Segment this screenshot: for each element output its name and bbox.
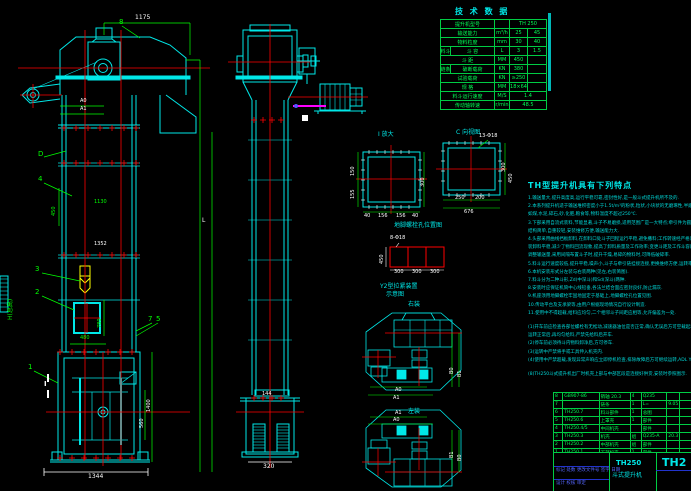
- bom-cell: [666, 409, 679, 416]
- tech-row: 规 格MM18×64: [441, 82, 546, 91]
- dim-676: 676: [464, 210, 474, 215]
- title-block-line: [656, 470, 691, 471]
- bom-cell: [666, 441, 679, 448]
- tech-label: 斗 距: [441, 56, 494, 64]
- arrangement-top-label: 右装: [408, 302, 420, 308]
- tech-value: [527, 65, 546, 73]
- title-block-line: [554, 466, 609, 467]
- bom-cell: 料斗部件: [599, 409, 630, 416]
- dim-320: 320: [263, 464, 274, 470]
- dim-A1: A1: [80, 107, 87, 112]
- bom-cell: 3: [554, 433, 562, 440]
- anchor-bolt-layout: [390, 247, 444, 267]
- anchor-caption: 地脚螺栓孔位置图: [394, 223, 442, 229]
- tech-value: [527, 56, 546, 64]
- arr-bot-B0: B0: [458, 454, 463, 461]
- bom-cell: 6: [554, 409, 562, 416]
- bom-cell: [679, 441, 691, 448]
- tech-row: 输送能力m³/h2545: [441, 28, 546, 37]
- tech-label: 传动轴转速: [441, 101, 494, 109]
- detail-caption-C: C 向视图: [456, 130, 480, 136]
- note-line: 装卸料平稳,减少了物料回流现象,提高了卸料质量及工作效率;变更斗距及工作斗容即可…: [528, 244, 691, 252]
- note-line: 7.料斗分为二种斗形,Zd(中深斗)和Sd(深斗)两种.: [528, 277, 691, 285]
- arr-top-B0: B0: [450, 367, 455, 374]
- tech-unit: KN: [494, 74, 509, 82]
- bom-cell: GB907-86: [562, 393, 598, 400]
- tech-row: 链条破断载荷KN380: [441, 64, 546, 73]
- bom-cell: 1: [630, 401, 641, 408]
- part-label-7: 7: [148, 316, 152, 323]
- bom-cell: [679, 425, 691, 432]
- title-block-divider: [656, 453, 657, 491]
- dim-b2: 156: [378, 214, 388, 219]
- bom-cell: TH250.7: [562, 409, 598, 416]
- dim-b3: 156: [396, 214, 406, 219]
- part-label-2: 2: [35, 289, 39, 296]
- tech-label: 试验载荷: [441, 74, 494, 82]
- notes-title: TH型提升机具有下列特点: [528, 180, 691, 191]
- tech-value: 45: [527, 29, 546, 37]
- main-dimensions: [34, 23, 212, 472]
- dim-144: 144: [262, 392, 272, 397]
- frame-mark: [548, 13, 551, 91]
- part-label-8: 8: [119, 19, 123, 26]
- dim-1175: 1175: [135, 15, 150, 21]
- tech-unit: mm: [494, 38, 509, 46]
- tech-row: 提升机型号TH 250: [441, 20, 546, 28]
- dim-200: 200: [475, 196, 485, 201]
- tech-unit: [494, 20, 509, 28]
- flange-right-dims: [443, 140, 505, 208]
- tech-value: 48.5: [509, 101, 546, 109]
- bom-row: 4TH250.4/5中间机壳部件: [554, 424, 691, 432]
- bom-cell: [679, 417, 691, 424]
- bom-cell: TH250.3: [562, 433, 598, 440]
- detail-caption-I: I 放大: [378, 132, 394, 138]
- product-name: 斗式提升机: [612, 473, 642, 479]
- tech-unit: L: [494, 47, 509, 55]
- tech-data-table: 提升机型号TH 250输送能力m³/h2545物料粒度mm3040料斗斗 容L3…: [440, 19, 547, 110]
- bom-cell: 2: [554, 441, 562, 448]
- part-label-4: 4: [38, 176, 42, 183]
- note-line: 6.本机安装形式分左装与右装两种(见左,右装简图).: [528, 269, 691, 277]
- dim-1344: 1344: [88, 474, 103, 480]
- arr-top-B1: B1: [458, 370, 463, 377]
- bom-row: 6TH250.7料斗部件1总图: [554, 408, 691, 416]
- tension-line2: 示意图: [386, 292, 404, 298]
- dim-155: 155: [351, 189, 356, 199]
- note-line: 5.料斗运行速度较低,提升平稳,噪声小,斗子与牵引链挂接连接,更换维修方便,运转…: [528, 261, 691, 269]
- tech-unit: r/min: [494, 101, 509, 109]
- bom-cell: 4: [554, 425, 562, 432]
- tech-value: 450: [509, 56, 527, 64]
- title-block-row2: 设计 校核 审定: [556, 482, 586, 487]
- tech-unit: MM: [494, 56, 509, 64]
- dim-560: 560: [140, 418, 145, 428]
- bom-cell: 总图: [641, 409, 667, 416]
- arr-bot-A1: A1: [395, 411, 402, 416]
- arrangement-bottom: [366, 410, 461, 487]
- part-label-5: 5: [156, 316, 160, 323]
- bom-cell: 7: [554, 401, 562, 408]
- dim-450: 450: [52, 206, 57, 216]
- dim-b1: 40: [364, 214, 370, 219]
- bom-cell: [679, 393, 691, 400]
- bucket-hatch: [253, 427, 289, 448]
- bom-cell: [562, 401, 598, 408]
- tech-value: 1.5: [527, 47, 546, 55]
- tech-value: [527, 83, 546, 91]
- bom-cell: 4: [630, 393, 641, 400]
- title-block-row1: 标记 处数 更改文件号 签字 日期: [556, 469, 620, 474]
- anchor-c3: 300: [430, 270, 440, 275]
- tech-unit: KN: [494, 65, 509, 73]
- bom-cell: Q235-A: [641, 433, 667, 440]
- dim-450-right: 450: [509, 173, 514, 183]
- holes-13: 13-Φ18: [479, 134, 497, 139]
- tech-row: 试验载荷KN≥250: [441, 73, 546, 82]
- note-line: 调整输送量,采用间隔布置斗子时,提升干燥,易碎的物料时,可降低破碎率.: [528, 252, 691, 260]
- tension-line1: Y2型拉紧装置: [380, 284, 417, 290]
- side-view: [236, 25, 366, 457]
- dim-480: 480: [80, 336, 90, 341]
- bom-cell: [630, 425, 641, 432]
- dim-H-total: H(总高): [8, 299, 14, 320]
- title-block: 标记 处数 更改文件号 签字 日期 设计 校核 审定 TH250 斗式提升机 T…: [553, 452, 691, 491]
- flange-right-centerlines: [436, 136, 507, 202]
- note-line: 1.输送量大,提升高度高,运行平稳可靠,密封性好,是一般斗式提升机所不及的.: [528, 195, 691, 203]
- note-line: 运转正常后,再均匀给料,严禁先给料后开车.: [528, 332, 691, 340]
- bolt-hole-marks: [361, 150, 422, 209]
- note-line: (1)开车前应检查各部位螺栓有无松动,减速器油位是否正常,确认无误后方可空载起动…: [528, 324, 691, 332]
- bom-cell: 中间机壳: [599, 425, 630, 432]
- dim-150: 150: [351, 166, 356, 176]
- bom-cell: 8: [554, 393, 562, 400]
- note-line: 10.传动平台及支承梁等,由用户根据现场情况自行设计制造.: [528, 302, 691, 310]
- dim-A0: A0: [80, 99, 87, 104]
- tech-value: ≥250: [509, 74, 527, 82]
- arr-top-A0: A0: [395, 388, 402, 393]
- shaft-end-dot: [294, 104, 298, 108]
- bom-row: 8GB907-86销轴 20.34Q235: [554, 393, 691, 400]
- main-centerlines: [18, 30, 210, 466]
- tech-label: 提升机型号: [441, 20, 494, 28]
- bom-cell: [666, 425, 679, 432]
- dim-1130: 1130: [94, 200, 107, 205]
- bom-cell: [679, 401, 691, 408]
- bom-cell: L=: [641, 401, 667, 408]
- bom-cell: 20.3: [666, 433, 679, 440]
- arr-bot-B1: B1: [450, 451, 455, 458]
- arrangement-bottom-label: 左装: [408, 409, 420, 415]
- model-number-partial: TH2: [662, 457, 686, 468]
- dim-L: L: [202, 218, 205, 224]
- note-line: 3.下部采用自流式装料,节能显著,斗子不易磨损,适用范围广是一大特点;牵引件为圆…: [528, 220, 691, 228]
- bom-cell: TH250.4/5: [562, 425, 598, 432]
- bom-cell: 部件: [641, 425, 667, 432]
- bom-row: 2TH250.2中部机壳组部件: [554, 440, 691, 448]
- bom-row: 5TH250.6上罩壳1部件: [554, 416, 691, 424]
- arrangement-top: [366, 313, 461, 390]
- tech-label: 规 格: [441, 83, 494, 91]
- tech-group: 料斗: [441, 47, 450, 55]
- note-line: 11.使用中不得超载,给料应均匀,二个相邻斗子间距应相等,允许偏差为一处.: [528, 310, 691, 318]
- tech-row: 传动轴转速r/min48.5: [441, 100, 546, 109]
- tech-label: 破断载荷: [450, 65, 494, 73]
- tech-value: 1.4: [509, 92, 546, 100]
- note-line: (8)TH250斗式提升机出厂时机壳上部与中部区段是连接好供货,安装时参照图示.: [528, 371, 691, 379]
- tech-row: 料斗运行速度M/S1.4: [441, 91, 546, 100]
- bom-cell: TH250.6: [562, 417, 598, 424]
- dim-780: 780: [98, 318, 103, 328]
- flange-detail-left: [361, 150, 422, 209]
- note-line: (2)停车前必须待斗内物料卸净后,方可停车.: [528, 340, 691, 348]
- bom-row: 7链条1L=9.05: [554, 400, 691, 408]
- part-label-1: 1: [28, 364, 32, 371]
- section-mark-I: I: [44, 381, 47, 388]
- bom-cell: 1: [630, 417, 641, 424]
- cad-drawing-sheet[interactable]: 1175 A0 A1 8 D 4 3 2 7 5 1 I H(总高) 450 1…: [0, 0, 691, 491]
- anchor-c2: 300: [412, 270, 422, 275]
- dim-b4: 40: [412, 214, 418, 219]
- tech-label: 物料粒度: [441, 38, 494, 46]
- title-block-line: [554, 479, 609, 480]
- dim-300-right: 300: [502, 162, 507, 172]
- bom-cell: TH250.2: [562, 441, 598, 448]
- tech-value: 380: [509, 65, 527, 73]
- tech-row: 斗 距MM450: [441, 55, 546, 64]
- note-line: 结构简单,自重较轻,安装维修方便,输送能力大.: [528, 228, 691, 236]
- flange-left-centerlines: [356, 145, 427, 214]
- tech-row: 物料粒度mm3040: [441, 37, 546, 46]
- bom-cell: 组: [630, 441, 641, 448]
- tech-value: 40: [527, 38, 546, 46]
- arr-top-A1: A1: [393, 396, 400, 401]
- anchor-holes: 8-Φ18: [390, 236, 405, 241]
- bom-cell: 上罩壳: [599, 417, 630, 424]
- bom-row: 3TH250.3机壳组Q235-A20.3: [554, 432, 691, 440]
- note-line: 9.机座须用地脚螺栓牢固地固定于基础上,地脚螺栓孔位置见图.: [528, 293, 691, 301]
- tech-value: 30: [509, 38, 527, 46]
- bom-cell: [666, 417, 679, 424]
- tech-value: TH 250: [509, 20, 546, 28]
- bom-cell: 5: [554, 417, 562, 424]
- dim-250: 250: [455, 196, 465, 201]
- tech-label: 输送能力: [441, 29, 494, 37]
- note-line: 2.本系列提升机适于输送堆积密度小于1.5t/m³的粉状,粒状,小块状的无磨琢性…: [528, 203, 691, 211]
- notes-lines: 1.输送量大,提升高度高,运行平稳可靠,密封性好,是一般斗式提升机所不及的.2.…: [528, 195, 691, 379]
- feature-notes: TH型提升机具有下列特点 1.输送量大,提升高度高,运行平稳可靠,密封性好,是一…: [528, 180, 691, 388]
- dim-300-left: 300: [421, 177, 426, 187]
- bom-cell: 链条: [599, 401, 630, 408]
- bom-cell: 9.05: [666, 401, 679, 408]
- arrangement-top-centerlines: [362, 333, 462, 386]
- bom-cell: 机壳: [599, 433, 630, 440]
- tech-value: [527, 74, 546, 82]
- bom-cell: 销轴 20.3: [599, 393, 630, 400]
- note-line: (4)使用中严禁超载,发现异常声响应立即停机检查,排除故障后方可继续运转,ADL…: [528, 357, 691, 365]
- tech-label: 斗 容: [450, 47, 494, 55]
- model-number: TH250: [616, 460, 641, 467]
- bom-cell: [666, 393, 679, 400]
- bom-cell: [679, 433, 691, 440]
- bom-cell: 1: [630, 409, 641, 416]
- note-line: 8.安装时应保证机筒中心线铅垂,各法兰结合面应密封良好,防止漏灰.: [528, 285, 691, 293]
- dim-1352: 1352: [94, 242, 107, 247]
- part-label-D: D: [38, 151, 43, 158]
- bom-cell: 部件: [641, 441, 667, 448]
- tech-value: 3: [509, 47, 527, 55]
- tech-unit: M/S: [494, 92, 509, 100]
- tech-unit: m³/h: [494, 29, 509, 37]
- anchor-c1: 300: [394, 270, 404, 275]
- tech-table-title: 技 术 数 据: [455, 8, 509, 16]
- note-line: 4.头部采用曲线挡板卸料,在卸料口处斗子回程运行平稳,避免撒料;工作转速经严格计…: [528, 236, 691, 244]
- arr-bot-A0: A0: [393, 418, 400, 423]
- bom-cell: 中部机壳: [599, 441, 630, 448]
- note-line: 如煤,水泥,碎石,砂,化肥,粮食等,物料温度不超过250℃.: [528, 211, 691, 219]
- tech-label: 料斗运行速度: [441, 92, 494, 100]
- dim-1400: 1400: [147, 399, 152, 412]
- tech-value: 18×64: [509, 83, 527, 91]
- bom-cell: Q235: [641, 393, 667, 400]
- bom-cell: 组: [630, 433, 641, 440]
- tech-unit: MM: [494, 83, 509, 91]
- tech-row: 料斗斗 容L31.5: [441, 46, 546, 55]
- dim-text-block: [302, 115, 308, 121]
- part-label-3: 3: [35, 266, 39, 273]
- tech-value: 25: [509, 29, 527, 37]
- bom-cell: [679, 409, 691, 416]
- tech-group: 链条: [441, 65, 450, 73]
- anchor-side: 450: [380, 254, 385, 264]
- bom-cell: 部件: [641, 417, 667, 424]
- note-line: (3)运转中严禁将手或工具伸入机壳内.: [528, 349, 691, 357]
